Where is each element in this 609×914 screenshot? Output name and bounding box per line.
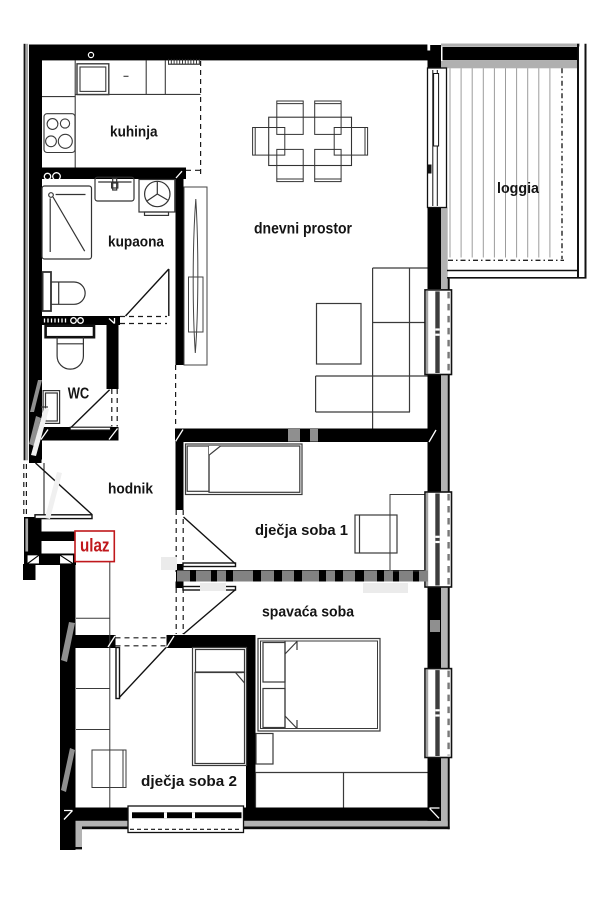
svg-text:spavaća soba: spavaća soba: [262, 603, 355, 620]
svg-text:dječja soba 2: dječja soba 2: [141, 773, 237, 790]
svg-text:dječja soba 1: dječja soba 1: [255, 522, 348, 539]
svg-text:loggia: loggia: [497, 180, 540, 197]
svg-text:ulaz: ulaz: [80, 536, 110, 556]
svg-text:WC: WC: [68, 386, 90, 403]
svg-text:dnevni prostor: dnevni prostor: [254, 220, 352, 237]
svg-text:kupaona: kupaona: [108, 233, 165, 250]
svg-text:kuhinja: kuhinja: [110, 123, 158, 140]
svg-text:hodnik: hodnik: [108, 480, 154, 497]
